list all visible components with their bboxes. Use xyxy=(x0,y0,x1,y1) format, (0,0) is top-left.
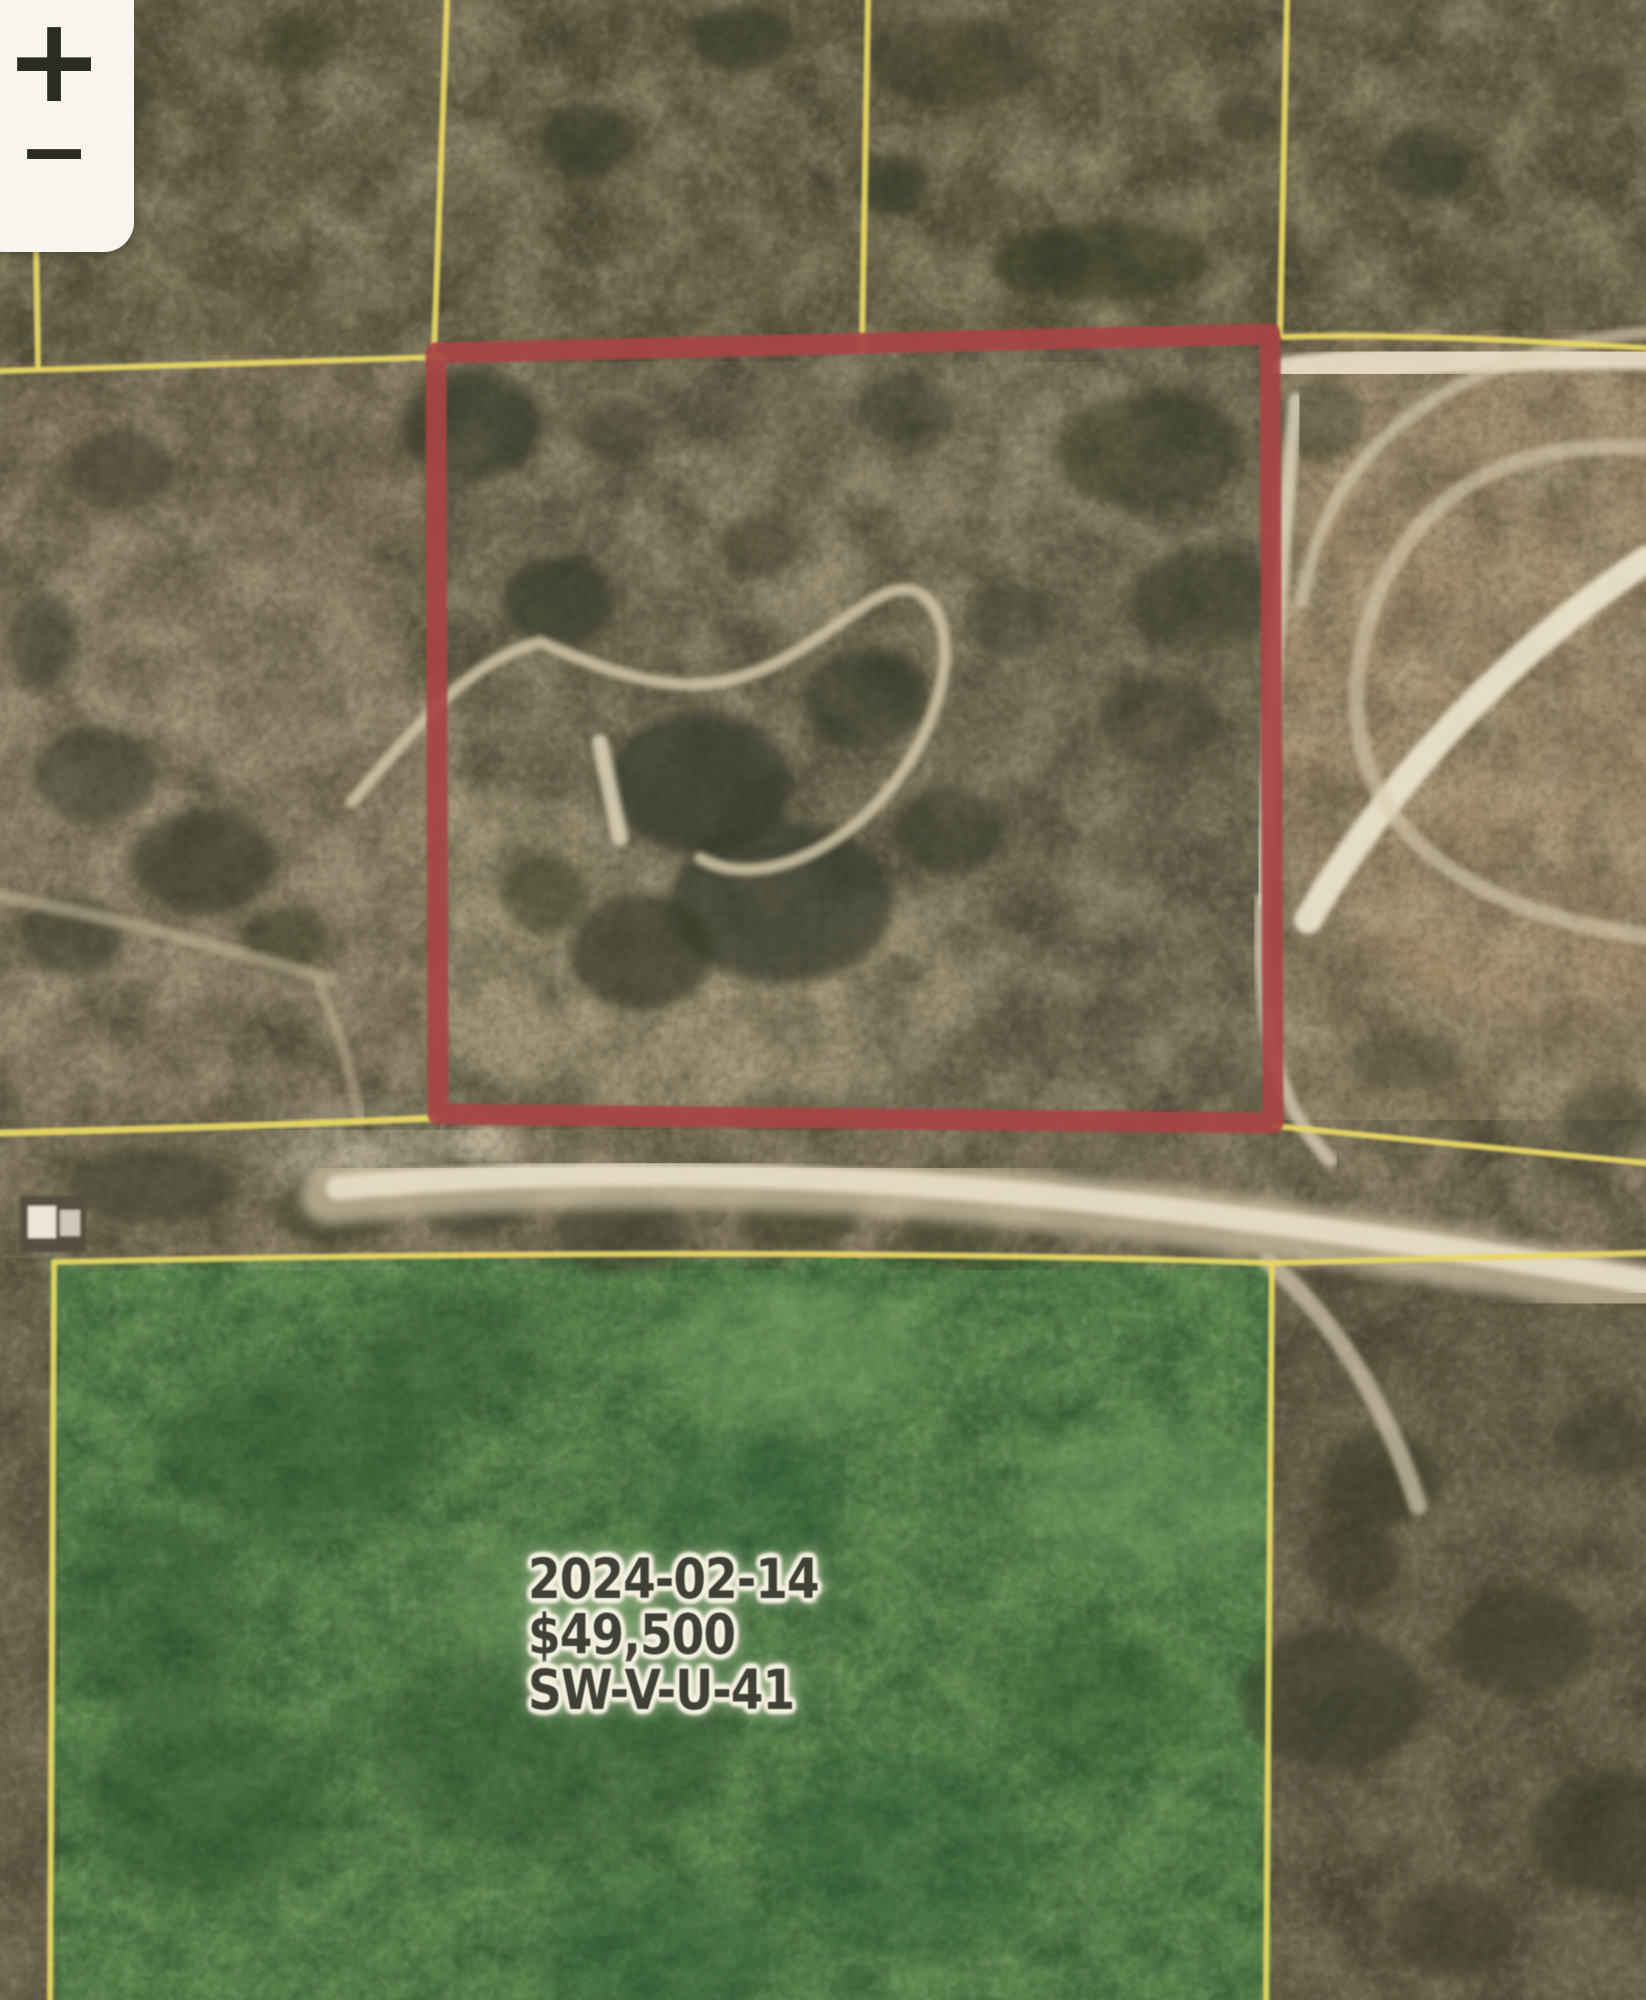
parcel-label-date: 2024-02-14 xyxy=(528,1552,819,1607)
parcel-label-price: $49,500 xyxy=(528,1607,819,1662)
building xyxy=(20,1196,86,1252)
parcel-label-id: SW-V-U-41 xyxy=(528,1663,819,1718)
parcel-label: 2024-02-14 $49,500 SW-V-U-41 xyxy=(528,1552,819,1718)
zoom-control: + − xyxy=(0,0,134,252)
zoom-out-button[interactable]: − xyxy=(0,122,134,252)
map-canvas[interactable]: 2024-02-14 $49,500 SW-V-U-41 + − xyxy=(0,0,1646,2000)
satellite-imagery xyxy=(0,0,1646,2000)
